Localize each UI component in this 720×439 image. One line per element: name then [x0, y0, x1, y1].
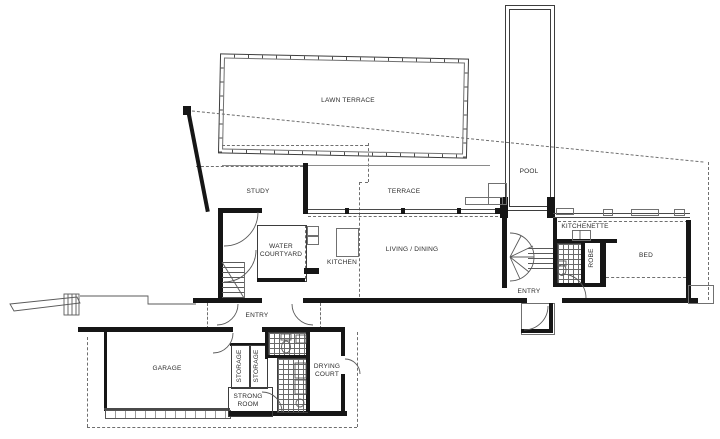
room-label-living-dining: LIVING / DINING — [386, 246, 438, 254]
wall-bathroom-south — [553, 283, 605, 287]
living-roof-dash — [308, 216, 498, 217]
room-label-entry-lower: ENTRY — [246, 312, 269, 320]
room-label-kitchenette: KITCHENETTE — [561, 223, 608, 231]
kitchen-sink-b — [307, 236, 319, 245]
stair-main-treads — [528, 248, 553, 273]
terrace-edge-line — [222, 165, 490, 166]
room-label-study: STUDY — [246, 188, 269, 196]
wall-south-west — [193, 298, 262, 303]
gate-post — [64, 294, 79, 315]
door-arc-breezeway-left — [217, 304, 238, 325]
room-label-kitchen: KITCHEN — [327, 259, 357, 267]
bathroom-floor-tiles — [557, 243, 583, 285]
bed-roof-dash — [558, 221, 688, 222]
floor-plan: LAWN TERRACE POOL STUDY TERRACE WATER CO… — [0, 0, 720, 439]
room-label-garage: GARAGE — [152, 365, 181, 373]
site-boundary-south — [87, 427, 357, 428]
wall-stair-west — [502, 218, 507, 288]
terrace-step-high — [488, 183, 507, 205]
roof-line-upper — [368, 143, 369, 182]
bath2-floor-tiles — [268, 332, 308, 357]
kitchen-sink-a — [307, 226, 319, 236]
mullion-5 — [495, 208, 500, 214]
wall-drying-east-upper — [341, 332, 345, 356]
room-label-strong-room: STRONG ROOM — [230, 393, 266, 409]
wall-garage-west — [104, 331, 107, 411]
room-label-storage-left: STORAGE — [236, 349, 244, 382]
breezeway-dash-right — [320, 303, 321, 329]
room-label-water-courtyard: WATER COURTYARD — [259, 243, 303, 259]
mullion-4 — [457, 208, 461, 214]
driveway-edge-upper — [80, 296, 196, 304]
breezeway-dash-left — [207, 303, 208, 329]
roof-line-jog — [359, 182, 368, 183]
wall-south-mid — [303, 298, 527, 303]
wall-porch-south — [521, 329, 553, 333]
wall-bathroom-east — [581, 243, 585, 287]
wall-south-east — [562, 298, 698, 303]
door-arc-study-upper — [224, 212, 258, 246]
site-boundary-west — [87, 337, 88, 427]
pool-inner-wall — [509, 9, 551, 207]
wall-drying-east-lower — [341, 374, 345, 414]
wall-porch-east — [549, 303, 553, 332]
study-roof-dash — [196, 166, 308, 167]
boundary-east — [708, 162, 709, 300]
room-label-storage-right: STORAGE — [253, 349, 261, 382]
wall-angled-head — [183, 106, 191, 115]
mullion-3 — [401, 208, 405, 214]
garage-door — [105, 410, 231, 419]
room-label-terrace: TERRACE — [388, 188, 420, 196]
bed-landing-step — [688, 285, 714, 304]
door-arc-breezeway-right — [292, 304, 313, 325]
mullion-2 — [345, 208, 349, 214]
wall-garage-north-west — [78, 327, 233, 332]
room-label-drying-court: DRYING COURT — [307, 363, 347, 379]
lawn-terrace-inner-edge — [222, 57, 465, 154]
wall-courtyard-south — [257, 278, 305, 282]
room-label-lawn-terrace: LAWN TERRACE — [321, 97, 375, 105]
room-label-robe: ROBE — [588, 248, 596, 267]
room-label-pool: POOL — [520, 168, 539, 176]
deck-ticks-right — [463, 60, 468, 158]
driveway-ramp — [10, 297, 80, 311]
window-wall-bed-b — [553, 217, 690, 218]
gate-post-louvres — [68, 294, 76, 315]
window-frame-4 — [674, 209, 685, 216]
window-frame-2 — [603, 209, 613, 216]
wall-pool-base-right — [547, 197, 555, 218]
kitchen-island — [336, 228, 359, 257]
room-label-bed: BED — [639, 252, 653, 260]
wall-study-east — [303, 163, 308, 213]
bed-ceiling-dash — [606, 277, 686, 278]
roof-line-lower — [359, 182, 360, 302]
laundry-corridor-tiles — [277, 358, 308, 413]
lawn-hidden-line — [222, 145, 368, 146]
site-boundary-east-lower — [357, 332, 358, 427]
room-label-entry-main: ENTRY — [518, 288, 541, 296]
window-frame-1 — [556, 208, 574, 215]
lawn-terrace-deck — [218, 53, 469, 158]
stair-west-treads — [222, 262, 245, 298]
wall-robe-east — [600, 241, 606, 287]
mullion-1 — [303, 208, 308, 214]
window-frame-3 — [631, 209, 659, 216]
wall-angled-west — [186, 109, 210, 212]
kitchenette-bench — [572, 230, 591, 241]
wall-kitchen-stub — [304, 268, 319, 274]
wall-study-south-stub — [218, 208, 262, 213]
